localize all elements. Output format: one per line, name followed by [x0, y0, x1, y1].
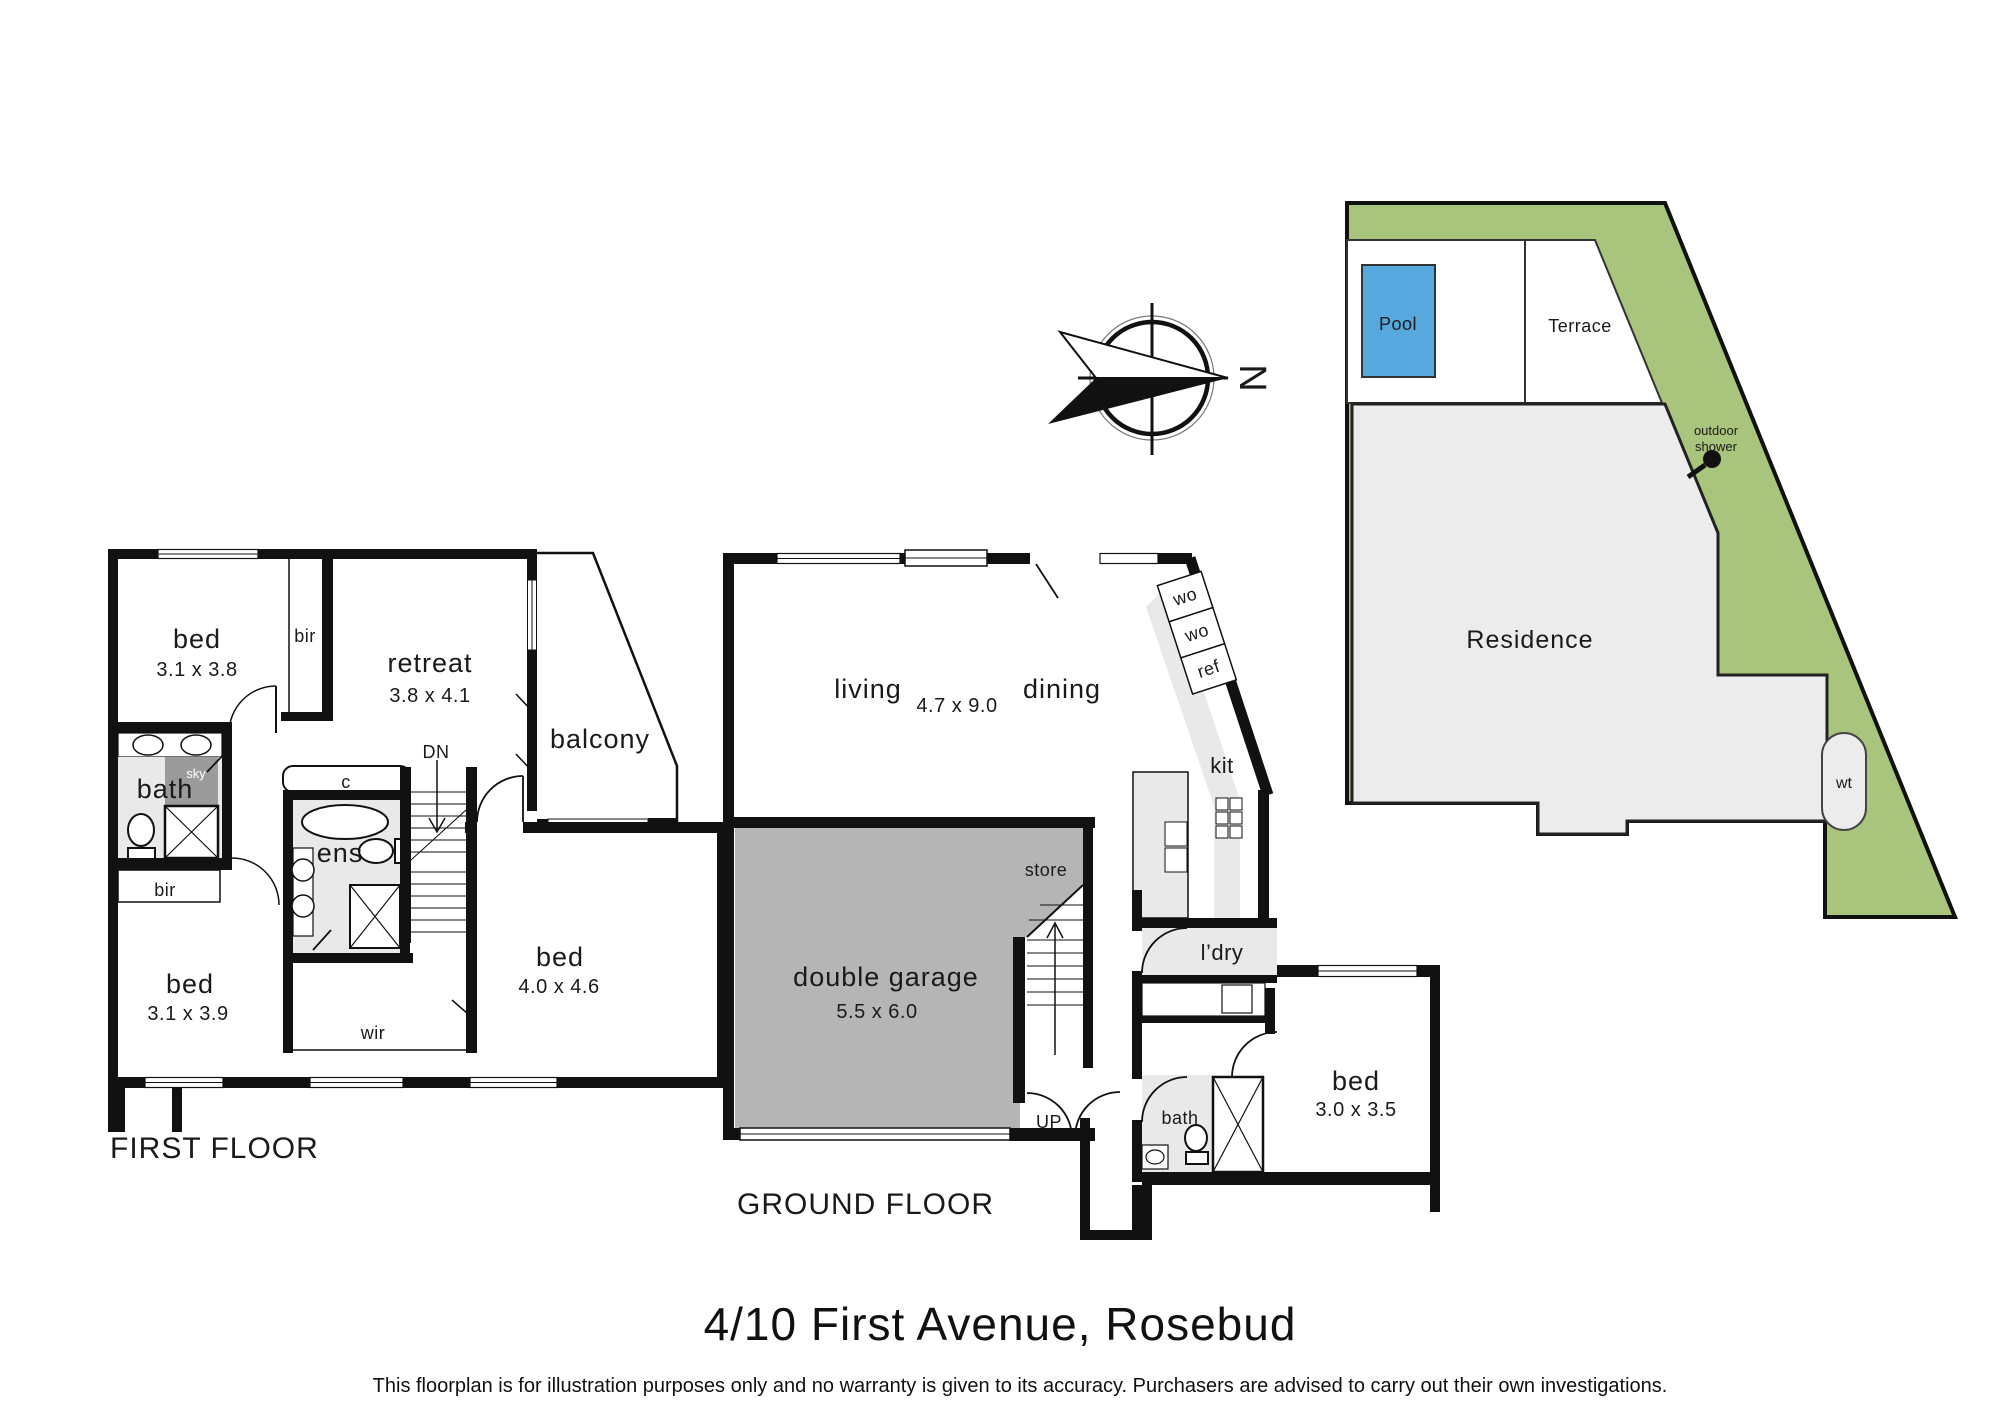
gf-garage-wall-top	[723, 817, 1095, 828]
gf-wall-below-bench	[1132, 1016, 1265, 1023]
gf-bed-wall-right	[1430, 965, 1440, 1192]
ff-bath-basin-1	[133, 735, 163, 755]
gf-corridor-wall-left	[1080, 1118, 1090, 1240]
gf-door-tick-top	[1036, 564, 1058, 598]
gf-kit-label: kit	[1210, 753, 1234, 778]
ff-stub-left-2	[172, 1088, 182, 1132]
ff-bir1-label: bir	[294, 626, 316, 646]
gf-bed-label: bed	[1332, 1066, 1380, 1096]
ff-sky-label: sky	[186, 766, 206, 781]
ff-stairs-wall-left	[400, 767, 411, 943]
ff-ens-basin-2	[292, 895, 314, 917]
gf-bed-door-arc	[1232, 1032, 1277, 1077]
gf-wall-right-kit	[1258, 790, 1269, 928]
gf-ldry-sink	[1222, 985, 1252, 1013]
ff-ens-label: ens	[317, 838, 364, 868]
ff-ens-basin-1	[292, 859, 314, 881]
ff-closet-label: c	[341, 772, 351, 792]
ff-bed1-label: bed	[173, 624, 221, 654]
first-floor-plan: bed 3.1 x 3.8 bir retreat 3.8 x 4.1 balc…	[108, 549, 727, 1165]
page-disclaimer: This floorplan is for illustration purpo…	[373, 1375, 1668, 1397]
gf-block-wall-left-2	[1132, 971, 1142, 1079]
gf-block-wall-left-3	[1132, 1120, 1142, 1182]
site-plan: Pool Terrace Residence outdoor shower wt	[1347, 203, 1955, 917]
gf-block-wall-left-1	[1132, 890, 1142, 931]
ff-bir2-label: bir	[154, 880, 176, 900]
ff-bed2-door-arc	[232, 858, 279, 905]
page-title: 4/10 First Avenue, Rosebud	[704, 1298, 1297, 1350]
gf-bed-dims: 3.0 x 3.5	[1315, 1099, 1396, 1121]
gf-bath-toilet	[1185, 1125, 1207, 1151]
ff-bed2-dims: 3.1 x 3.9	[147, 1003, 228, 1025]
ff-ens-wall-bottom	[283, 953, 413, 963]
ff-bed1-door-arc	[229, 686, 276, 733]
gf-stub-1	[1132, 1185, 1152, 1240]
ground-floor-plan: wo wo ref	[723, 550, 1440, 1240]
ff-retreat-label: retreat	[387, 648, 472, 678]
ff-ens-toilet	[359, 839, 393, 863]
gf-wall-kit-bottom	[1138, 918, 1277, 928]
ff-stub-left-1	[108, 1088, 125, 1132]
compass: N	[1048, 303, 1273, 455]
gf-island-sink-2	[1165, 848, 1187, 872]
gf-stub-2	[1430, 1185, 1440, 1212]
site-outdoor-shower-label-2: shower	[1695, 439, 1738, 454]
ff-windows-bottom	[145, 1078, 557, 1088]
site-outdoor-shower-label-1: outdoor	[1694, 423, 1739, 438]
gf-bath-basin	[1146, 1150, 1164, 1164]
ff-bed1-wall-bottom	[118, 722, 222, 733]
ff-ens-wall-left	[283, 790, 293, 955]
ff-retreat-dims: 3.8 x 4.1	[389, 685, 470, 707]
gf-stairs-wall-right	[1083, 828, 1093, 1068]
gf-hall-bed-wall	[1265, 988, 1275, 1034]
ff-stairs-treads	[411, 792, 466, 932]
gf-stairs-wall-left	[1013, 937, 1025, 1103]
gf-wall-bottom-left-corner	[723, 1128, 740, 1140]
ff-dn-label: DN	[423, 742, 450, 762]
ff-bath-label: bath	[137, 774, 194, 804]
gf-bath-toilet-tank	[1186, 1152, 1208, 1164]
ff-bath-toilet	[128, 814, 154, 846]
gf-garage-label: double garage	[793, 962, 979, 992]
ff-ens-tub	[302, 805, 388, 839]
gf-wall-left	[723, 553, 734, 1140]
ff-balcony-door-arc	[477, 776, 523, 822]
gf-island-sink-1	[1165, 822, 1187, 846]
gf-bath-label: bath	[1161, 1108, 1198, 1128]
site-pool-label: Pool	[1379, 314, 1417, 334]
gf-store-label: store	[1025, 860, 1068, 880]
balcony-outline	[537, 553, 677, 828]
gf-door-gap-top	[1030, 553, 1100, 564]
ff-bed2-label: bed	[166, 969, 214, 999]
ff-hall-wall	[222, 722, 232, 870]
ground-floor-title: GROUND FLOOR	[737, 1188, 994, 1221]
gf-bed-wall-bottom	[1142, 1172, 1440, 1185]
gf-living-dims: 4.7 x 9.0	[916, 695, 997, 717]
ff-bed1-dims: 3.1 x 3.8	[156, 659, 237, 681]
ff-bed3-door-gap	[477, 822, 523, 833]
ff-bir1-wall-right	[322, 558, 333, 720]
ff-wir-door-tick	[452, 1000, 468, 1014]
ff-wir-label: wir	[360, 1023, 386, 1043]
gf-ldry-wall-bottom	[1132, 975, 1277, 983]
gf-up-label: UP	[1036, 1112, 1062, 1132]
ff-bir1-wall-bottom	[281, 712, 333, 721]
floorplan-page: bed 3.1 x 3.8 bir retreat 3.8 x 4.1 balc…	[0, 0, 2000, 1415]
ff-bath-wall-bottom	[118, 858, 222, 870]
site-terrace-label: Terrace	[1548, 316, 1612, 336]
compass-north-label: N	[1231, 364, 1273, 391]
gf-garage-dims: 5.5 x 6.0	[836, 1001, 917, 1023]
ff-wall-left	[108, 549, 118, 1088]
site-residence-label: Residence	[1466, 626, 1593, 654]
gf-dining-label: dining	[1023, 674, 1101, 704]
gf-window-top-3	[1100, 554, 1158, 564]
ff-balcony-label: balcony	[550, 724, 650, 754]
gf-ldry-label: l’dry	[1201, 940, 1244, 965]
gf-living-label: living	[834, 674, 902, 704]
ff-bath-basin-2	[181, 735, 211, 755]
ff-bed3-label: bed	[536, 942, 584, 972]
site-wt-label: wt	[1835, 775, 1853, 792]
floorplan-drawing: bed 3.1 x 3.8 bir retreat 3.8 x 4.1 balc…	[0, 0, 2000, 1415]
ff-bed3-dims: 4.0 x 4.6	[518, 976, 599, 998]
first-floor-title: FIRST FLOOR	[110, 1132, 319, 1165]
